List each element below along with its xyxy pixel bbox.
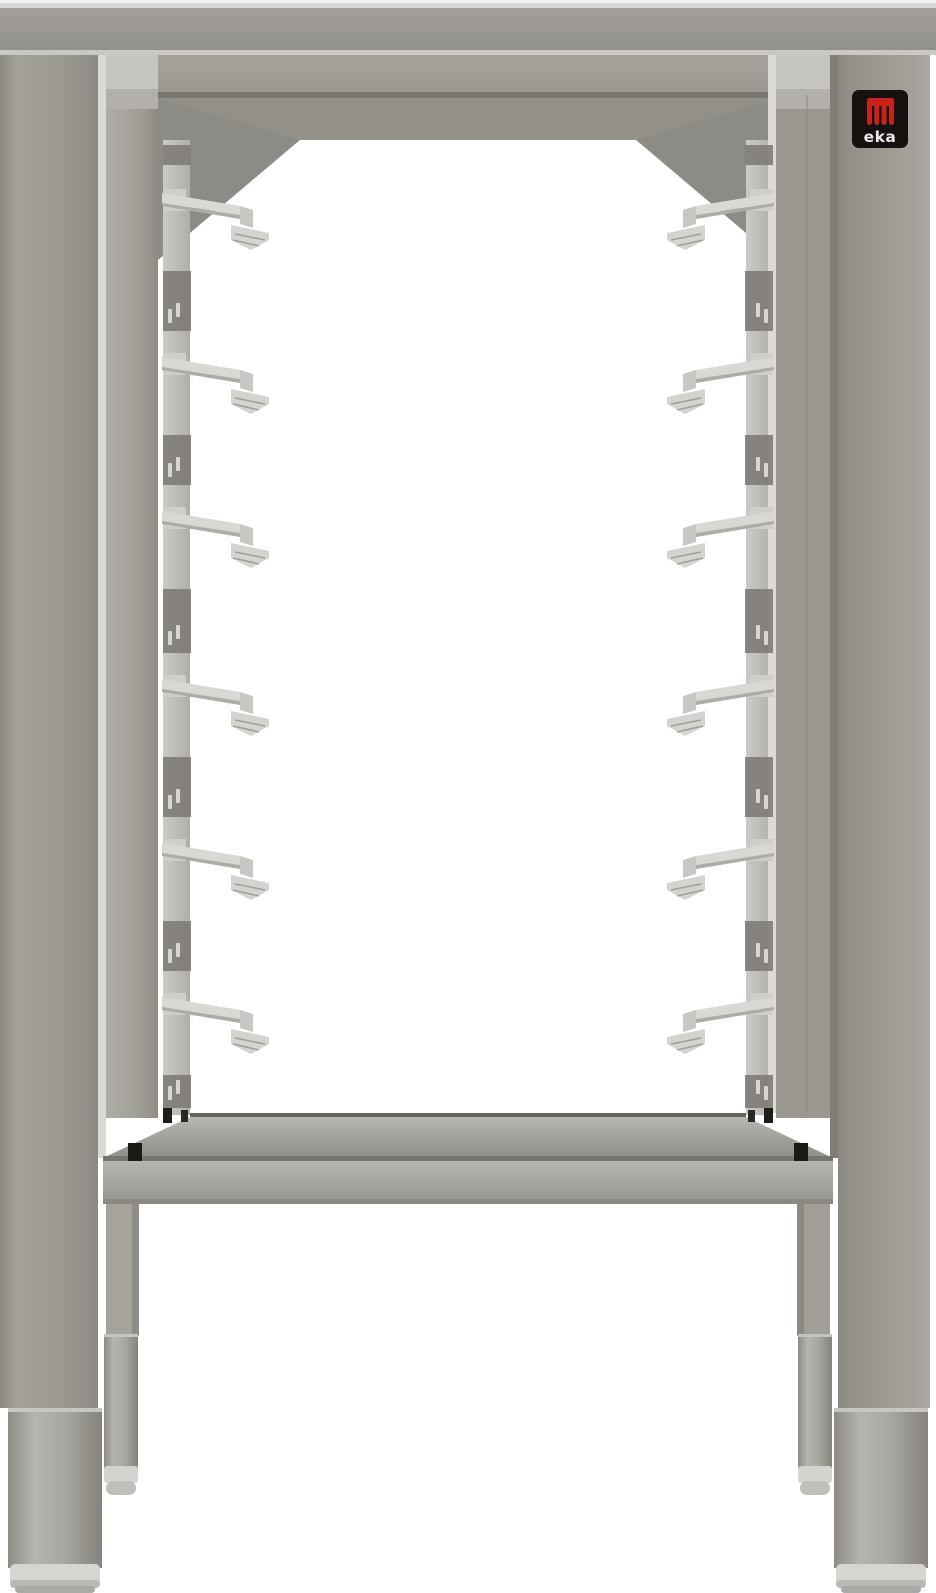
tabletop-top-surface: [0, 0, 936, 3]
rail-pin: [756, 789, 760, 803]
rear-foot-left-ring: [104, 1466, 138, 1483]
front-foot-right-base: [841, 1586, 921, 1593]
rail-pin: [756, 625, 760, 639]
rear-foot-right-seam: [798, 1334, 832, 1337]
rail-pin: [168, 309, 172, 323]
rear-foot-left-base: [106, 1481, 136, 1495]
rear-leg-left-lower-edge: [132, 1204, 139, 1336]
rear-leg-left-highlight-fade: [106, 89, 158, 109]
clip-left-post: [128, 1143, 142, 1161]
rail-pin: [168, 631, 172, 645]
brand-badge: eka: [852, 90, 908, 148]
rail-pin: [168, 795, 172, 809]
rail-shadow-segment: [745, 145, 773, 165]
apron-face: [103, 1161, 833, 1204]
rail-pin: [756, 457, 760, 471]
rear-leg-right-highlight-fade: [776, 89, 830, 109]
cross-member-face: [98, 55, 838, 92]
leg-gap-highlight-left: [98, 55, 106, 1158]
front-foot-right-seam: [834, 1408, 928, 1412]
clip-right-rail-small: [748, 1110, 755, 1122]
rear-leg-right-lower-edge: [797, 1204, 804, 1336]
rear-leg-right-seam: [806, 95, 808, 1115]
bottom-shelf: [103, 1113, 833, 1161]
clip-right-rail: [764, 1108, 773, 1123]
clip-left-rail-small: [181, 1110, 188, 1122]
rear-foot-right-base: [800, 1481, 830, 1495]
rear-leg-right: [776, 55, 830, 1118]
clip-right-post: [794, 1143, 808, 1161]
rear-foot-left-seam: [104, 1334, 138, 1337]
rear-foot-right: [798, 1334, 832, 1468]
rail-pin: [176, 625, 180, 639]
cross-member-shadow-line: [98, 92, 838, 98]
clip-left-rail: [163, 1108, 172, 1123]
oven-stand-image: eka: [0, 0, 936, 1593]
logo-wordmark: eka: [864, 128, 897, 146]
rail-pin: [176, 1080, 180, 1094]
front-leg-left: [0, 55, 98, 1408]
rail-pin: [764, 463, 768, 477]
rail-pin: [168, 1086, 172, 1100]
tabletop-front-edge: [0, 8, 936, 50]
rail-shadow-segment: [745, 271, 773, 331]
rail-pin: [176, 457, 180, 471]
rear-foot-right-ring: [798, 1466, 832, 1483]
rear-leg-left-top-highlight: [106, 55, 158, 89]
rail-shadow-segment: [745, 757, 773, 817]
rail-pin: [764, 949, 768, 963]
shelf-apron: [103, 1161, 833, 1204]
rail-shadow-segment: [163, 589, 191, 653]
rail-shadow-segment: [163, 145, 191, 165]
apron-bottom-edge: [103, 1199, 833, 1204]
rail-shadow-segment: [163, 271, 191, 331]
front-foot-left: [8, 1408, 102, 1568]
rail-pin: [764, 795, 768, 809]
rail-pin: [764, 309, 768, 323]
rail-pin: [764, 631, 768, 645]
rail-pin: [176, 303, 180, 317]
rail-pin: [176, 789, 180, 803]
shelf-surface: [103, 1117, 833, 1158]
tabletop: [0, 0, 936, 55]
front-leg-right: [838, 55, 930, 1408]
rail-pin: [168, 949, 172, 963]
front-foot-right: [834, 1408, 928, 1568]
rail-pin: [764, 1086, 768, 1100]
front-foot-left-base: [15, 1586, 95, 1593]
rear-leg-right-top-highlight: [776, 55, 830, 89]
shelf-front-lip: [103, 1156, 833, 1161]
tabletop-bottom-lip: [0, 50, 936, 55]
leg-gap-shadow-right: [830, 55, 838, 1158]
rail-shadow-segment: [163, 757, 191, 817]
front-foot-left-seam: [8, 1408, 102, 1412]
rail-pin: [756, 943, 760, 957]
rear-foot-left: [104, 1334, 138, 1468]
rail-pin: [756, 1080, 760, 1094]
rear-leg-left: [106, 55, 158, 1118]
rail-shadow-segment: [745, 589, 773, 653]
rail-pin: [176, 943, 180, 957]
rail-pin: [756, 303, 760, 317]
rail-pin: [168, 463, 172, 477]
tabletop-top-edge: [0, 3, 936, 8]
product-photo-stage: eka: [0, 0, 936, 1593]
